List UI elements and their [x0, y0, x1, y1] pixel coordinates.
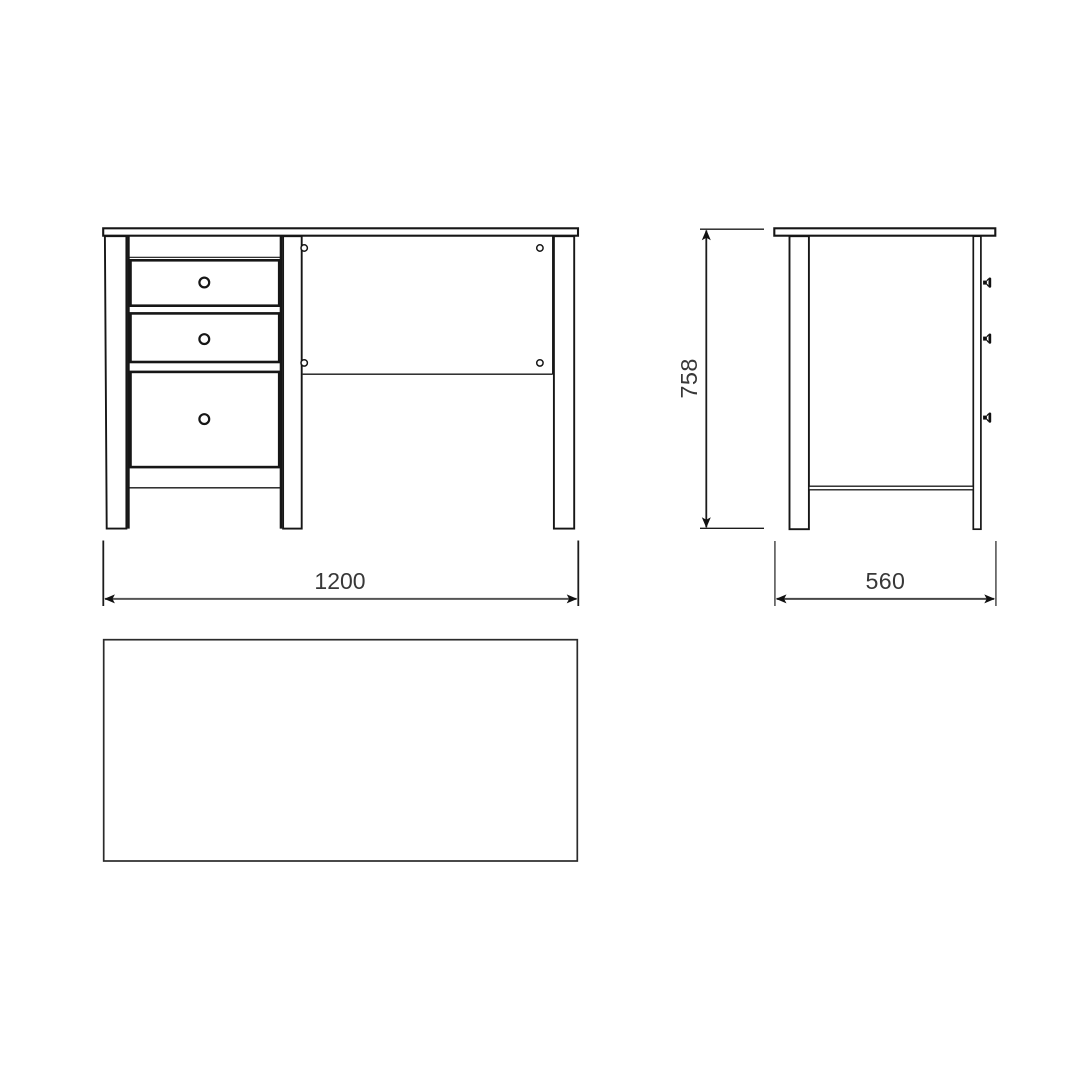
- svg-text:1200: 1200: [314, 568, 365, 594]
- svg-text:560: 560: [865, 568, 905, 594]
- svg-text:758: 758: [676, 358, 702, 398]
